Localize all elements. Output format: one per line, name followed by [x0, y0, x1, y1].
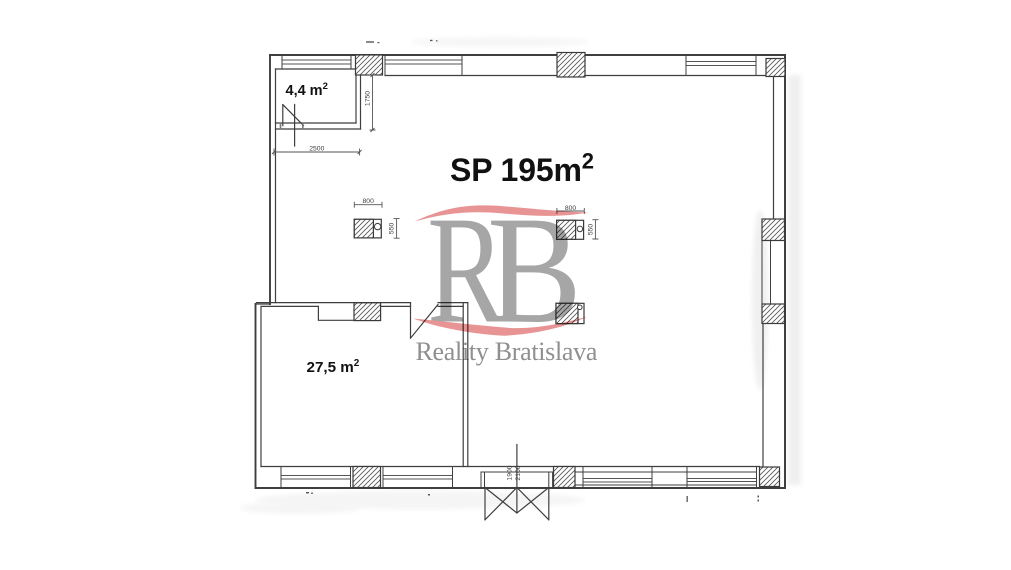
- svg-text:1900: 1900: [507, 465, 514, 480]
- svg-text:27,5 m2: 27,5 m2: [307, 358, 360, 376]
- svg-text:SP 195m2: SP 195m2: [450, 149, 594, 188]
- svg-text:1750: 1750: [365, 91, 372, 106]
- svg-text:2500: 2500: [309, 146, 324, 153]
- svg-text:550: 550: [588, 224, 595, 236]
- svg-text:Reality Bratislava: Reality Bratislava: [416, 337, 598, 366]
- svg-text:800: 800: [363, 198, 375, 205]
- svg-text:4,4 m2: 4,4 m2: [286, 81, 328, 99]
- svg-text:550: 550: [389, 223, 396, 235]
- svg-text:2100: 2100: [515, 465, 522, 480]
